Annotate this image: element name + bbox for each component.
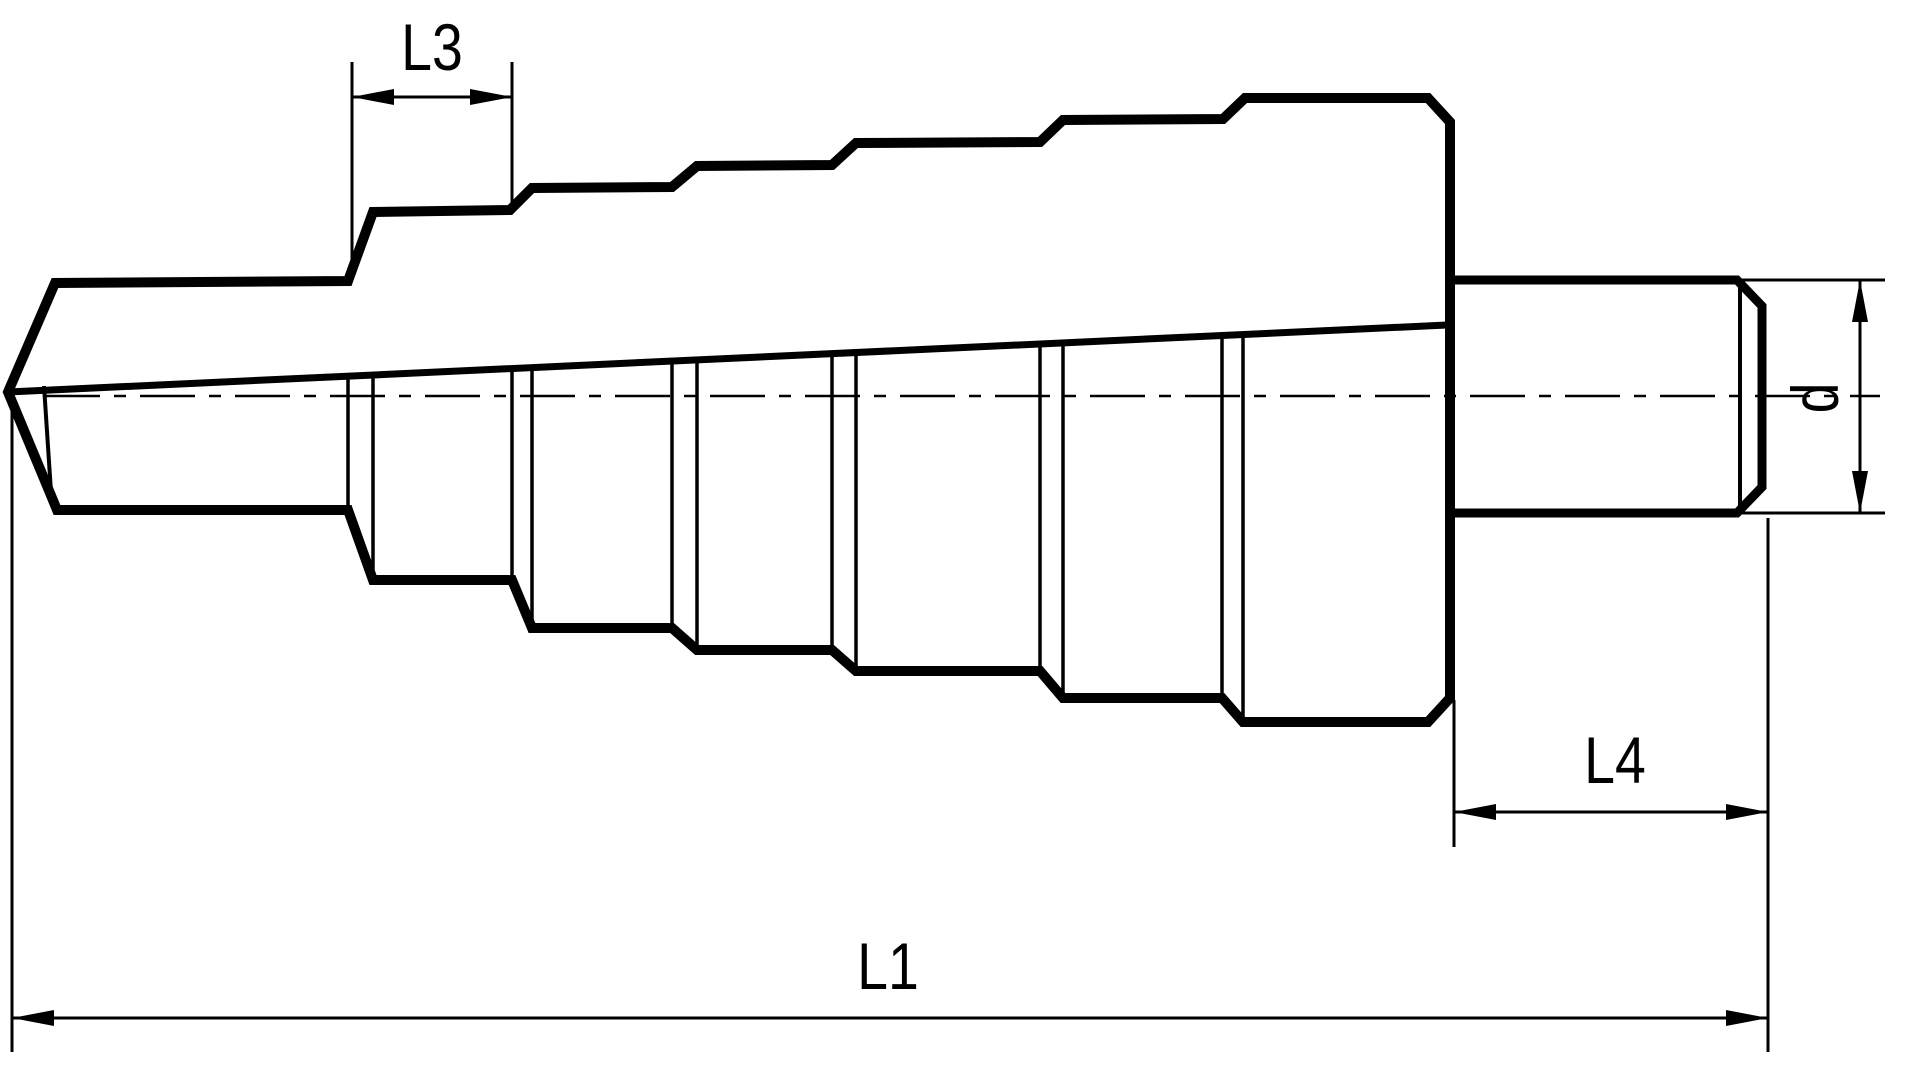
dimension-arrow-L3-2 [470, 89, 512, 105]
dimension-arrow-L1-2 [1726, 1010, 1768, 1026]
step-drill-diagram [0, 0, 1920, 1091]
dimension-arrow-d-1 [1852, 280, 1868, 322]
technical-drawing-canvas: L3 L1 L4 d [0, 0, 1920, 1091]
drill-body-fill [8, 98, 1450, 722]
dim-label-d: d [1782, 383, 1848, 414]
dimension-arrow-L1-1 [12, 1010, 54, 1026]
dim-label-l3: L3 [401, 14, 463, 80]
dimension-arrow-L3-1 [352, 89, 394, 105]
dimension-arrow-L4-1 [1454, 804, 1496, 820]
dimension-arrow-d-2 [1852, 471, 1868, 513]
dimension-arrow-L4-2 [1726, 804, 1768, 820]
dim-label-l1: L1 [857, 933, 919, 999]
dim-label-l4: L4 [1584, 727, 1646, 793]
